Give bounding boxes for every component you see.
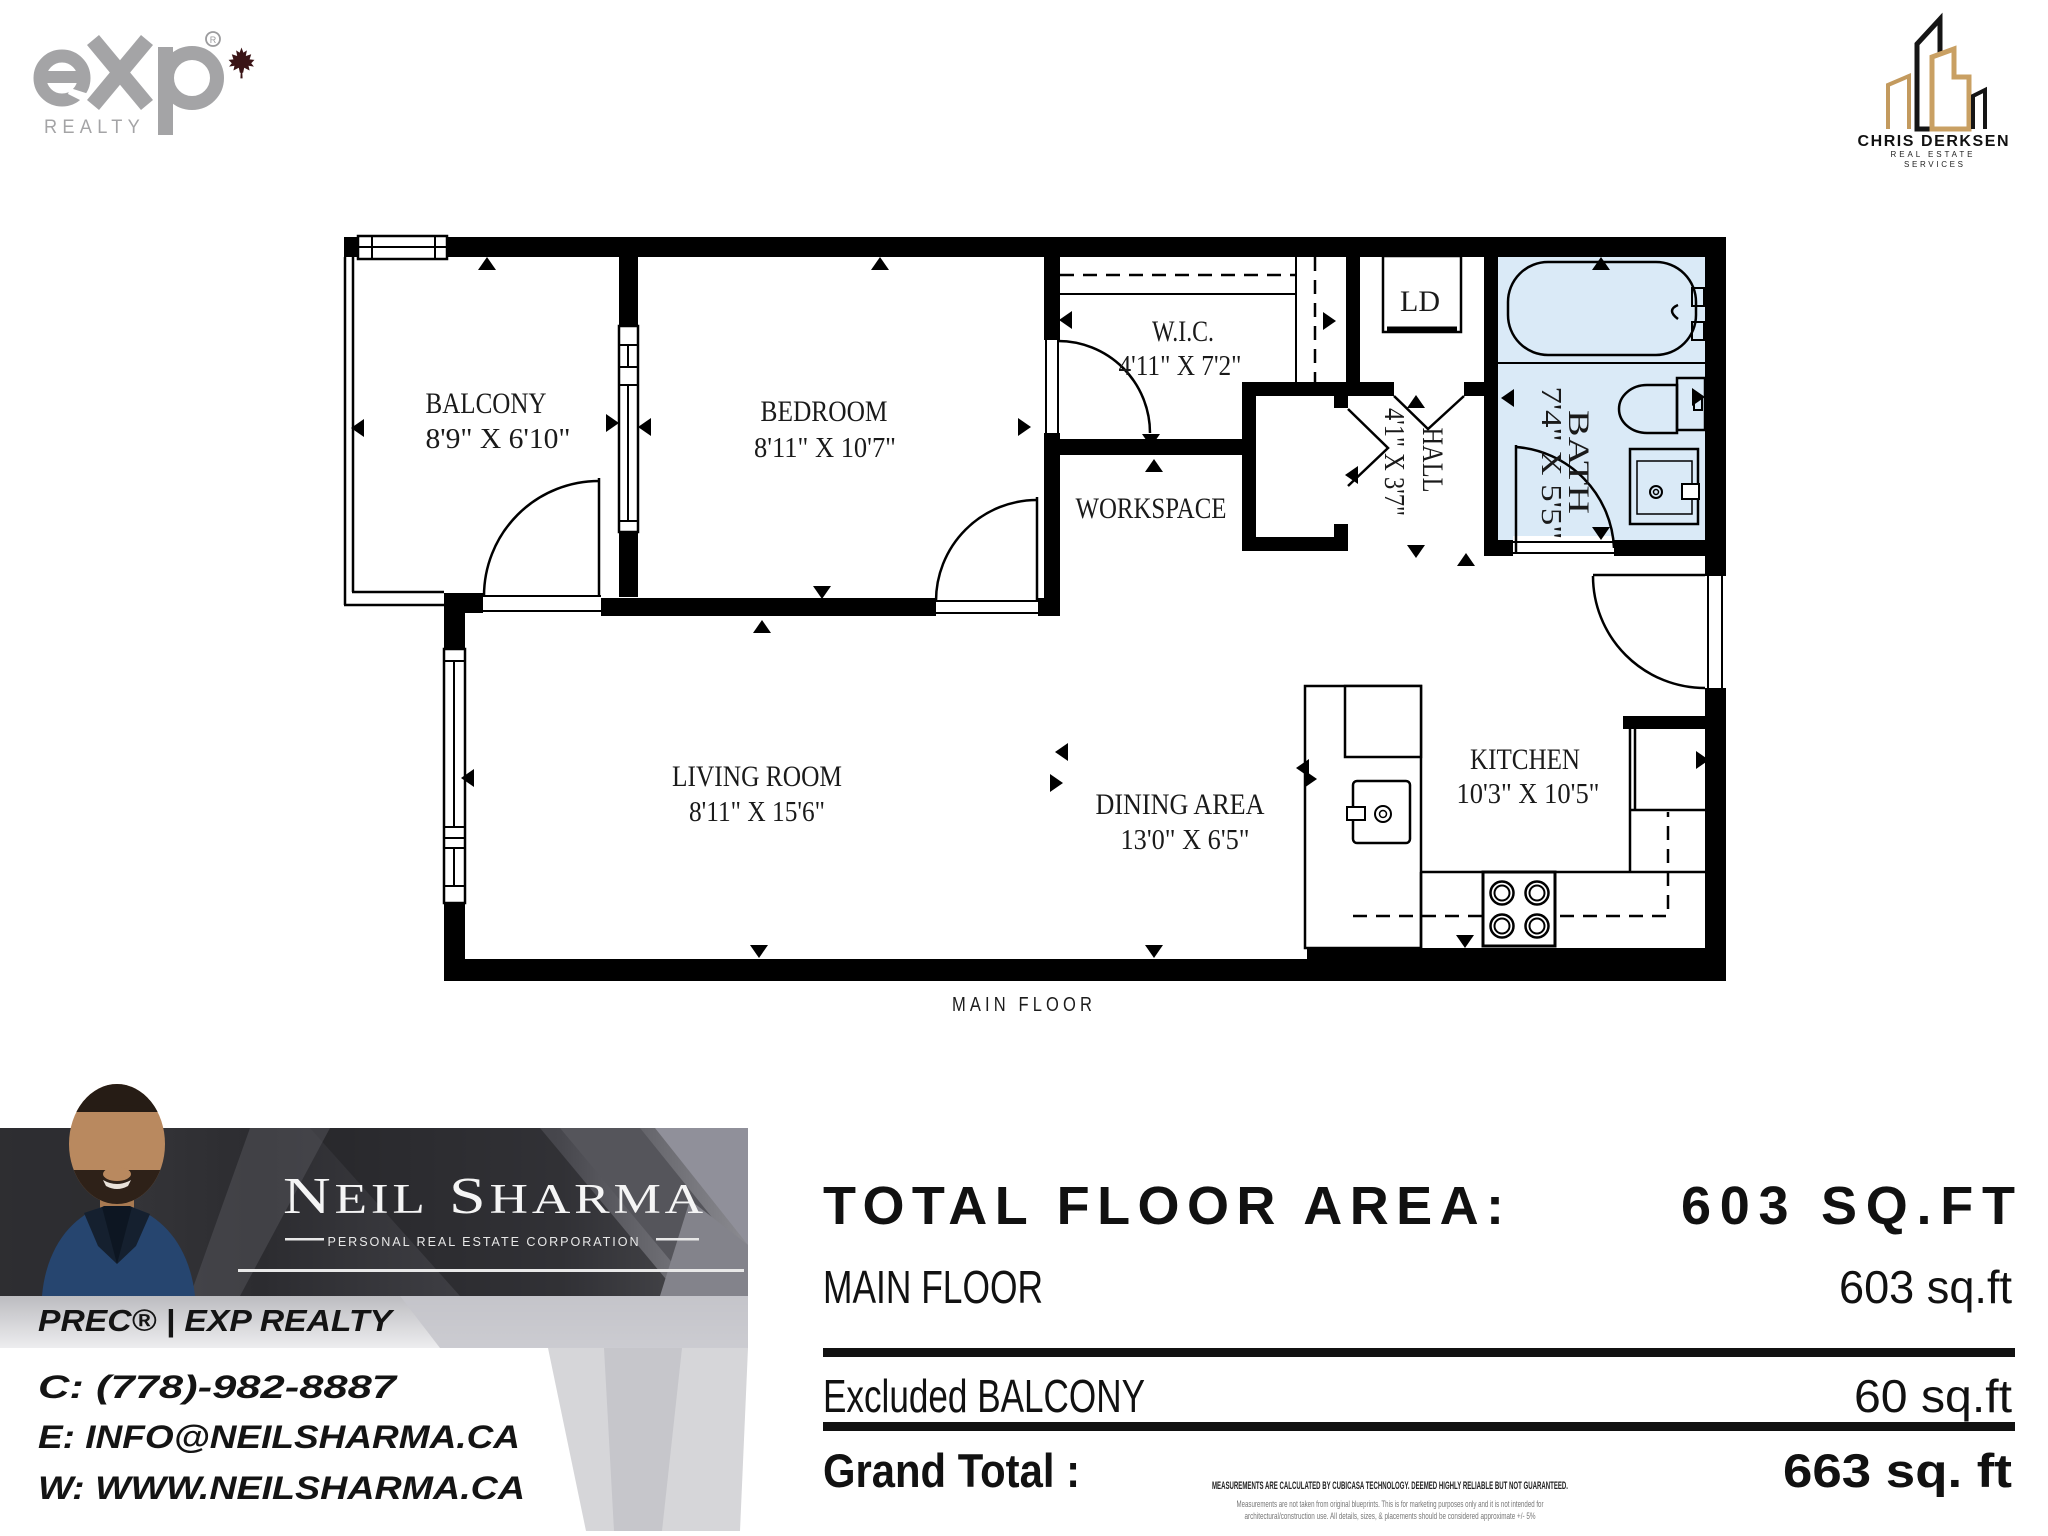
svg-text:SERVICES: SERVICES (1904, 160, 1966, 169)
svg-text:4'11" X 7'2": 4'11" X 7'2" (1119, 350, 1242, 382)
svg-text:MAIN FLOOR: MAIN FLOOR (952, 994, 1096, 1016)
svg-text:WORKSPACE: WORKSPACE (1076, 492, 1227, 525)
svg-text:MAIN FLOOR: MAIN FLOOR (823, 1261, 1043, 1313)
svg-text:LD: LD (1400, 285, 1440, 318)
svg-text:W.I.C.: W.I.C. (1152, 315, 1214, 348)
svg-text:R: R (210, 35, 217, 45)
svg-text:E: INFO@NEILSHARMA.CA: E: INFO@NEILSHARMA.CA (38, 1419, 520, 1455)
svg-text:NEIL SHARMA: NEIL SHARMA (283, 1168, 707, 1225)
svg-text:KITCHEN: KITCHEN (1470, 743, 1580, 776)
svg-text:BALCONY: BALCONY (426, 387, 547, 420)
svg-text:663 sq. ft: 663 sq. ft (1783, 1444, 2012, 1497)
svg-text:10'3" X 10'5": 10'3" X 10'5" (1457, 778, 1600, 810)
svg-text:Grand Total :: Grand Total : (823, 1444, 1080, 1497)
svg-text:CHRIS DERKSEN: CHRIS DERKSEN (1858, 133, 2011, 150)
svg-text:architectural/construction use: architectural/construction use. All deta… (1245, 1511, 1536, 1522)
svg-text:Measurements are not taken fro: Measurements are not taken from original… (1237, 1499, 1544, 1510)
svg-text:8'11" X 15'6": 8'11" X 15'6" (689, 796, 825, 828)
svg-text:8'9" X 6'10": 8'9" X 6'10" (426, 423, 571, 455)
svg-text:REALTY: REALTY (44, 117, 145, 138)
svg-text:TOTAL FLOOR AREA:: TOTAL FLOOR AREA: (823, 1176, 1504, 1236)
svg-text:BEDROOM: BEDROOM (761, 395, 888, 428)
svg-text:C: (778)-982-8887: C: (778)-982-8887 (38, 1369, 399, 1405)
svg-text:W: WWW.NEILSHARMA.CA: W: WWW.NEILSHARMA.CA (38, 1470, 525, 1506)
svg-text:8'11" X 10'7": 8'11" X 10'7" (754, 432, 896, 464)
svg-text:Excluded BALCONY: Excluded BALCONY (823, 1370, 1145, 1422)
svg-text:4'1" X 3'7": 4'1" X 3'7" (1378, 408, 1410, 516)
svg-text:603 sq.ft: 603 sq.ft (1839, 1261, 2012, 1313)
svg-text:LIVING ROOM: LIVING ROOM (672, 760, 842, 793)
svg-text:PERSONAL REAL ESTATE CORPORATI: PERSONAL REAL ESTATE CORPORATION (328, 1234, 641, 1249)
svg-text:HALL: HALL (1416, 428, 1449, 493)
svg-text:603 SQ.FT: 603 SQ.FT (1681, 1176, 2015, 1236)
svg-text:DINING AREA: DINING AREA (1096, 788, 1265, 821)
svg-text:60 sq.ft: 60 sq.ft (1854, 1370, 2012, 1422)
svg-text:PREC® | EXP REALTY: PREC® | EXP REALTY (38, 1303, 396, 1338)
svg-text:13'0" X 6'5": 13'0" X 6'5" (1121, 824, 1250, 856)
svg-text:7'4" X 5'5": 7'4" X 5'5" (1535, 387, 1567, 540)
svg-text:REAL ESTATE: REAL ESTATE (1891, 150, 1976, 159)
svg-text:MEASUREMENTS ARE CALCULATED BY: MEASUREMENTS ARE CALCULATED BY CUBICASA … (1212, 1480, 1568, 1492)
